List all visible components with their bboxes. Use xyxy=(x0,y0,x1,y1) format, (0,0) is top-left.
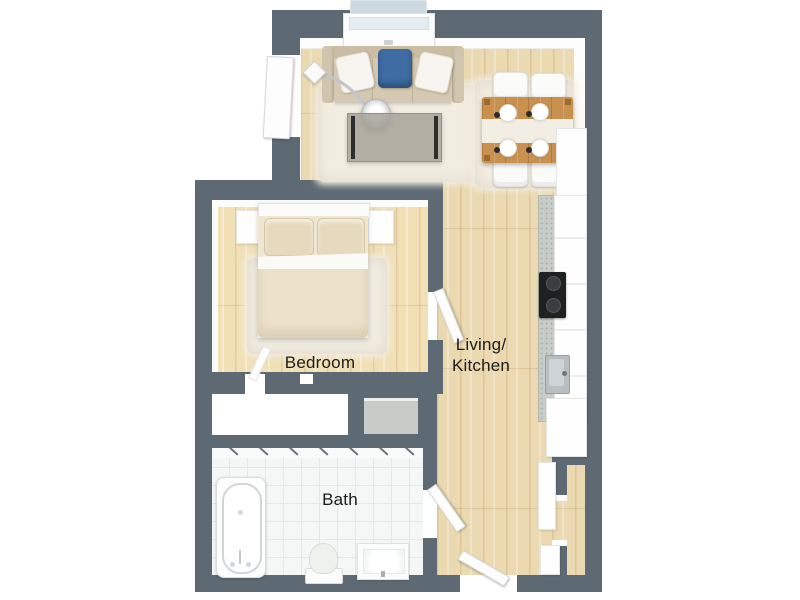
tub-handle-icon xyxy=(246,562,251,567)
wall-bedroom-right-upper xyxy=(428,200,443,292)
sink-vanity xyxy=(357,543,409,580)
wall-bath-right-lower xyxy=(423,538,437,575)
bath-wall-face-top xyxy=(212,448,423,458)
bath-label: Bath xyxy=(290,489,390,510)
wardrobe-closet xyxy=(212,394,348,435)
floor-plan: Bedroom Bath Living/ Kitchen xyxy=(0,0,800,600)
bedroom-label: Bedroom xyxy=(255,352,385,373)
wall-bedroom-top xyxy=(195,180,443,200)
wall-left xyxy=(195,180,212,592)
place-setting xyxy=(499,139,517,157)
burner-icon xyxy=(546,276,561,291)
wall-bath-top xyxy=(195,435,437,448)
wall-bottom-right xyxy=(517,575,602,592)
kitchen-tall-cabinet xyxy=(556,128,587,197)
living-kitchen-label: Living/ Kitchen xyxy=(421,334,541,376)
nightstand xyxy=(368,210,394,244)
utility-closet xyxy=(364,398,418,434)
bedroom-wall-face-left xyxy=(212,207,218,372)
place-setting xyxy=(531,103,549,121)
wall-right xyxy=(585,10,602,592)
kitchen-lower-cabinet xyxy=(538,462,556,530)
coffee-table xyxy=(347,113,442,162)
drain-icon xyxy=(238,510,243,515)
place-setting xyxy=(499,104,517,122)
balcony-door xyxy=(263,56,294,139)
sofa-arm-right xyxy=(452,46,464,103)
living-label-line2: Kitchen xyxy=(421,355,541,376)
nightstand xyxy=(236,210,260,244)
tub-handle-icon xyxy=(230,562,235,567)
table-leg xyxy=(565,99,571,105)
duvet xyxy=(258,269,368,338)
toilet xyxy=(305,543,341,582)
cup-icon xyxy=(526,147,532,153)
cup-icon xyxy=(494,112,500,118)
cup-icon xyxy=(526,111,532,117)
window-glass xyxy=(349,17,429,30)
table-leg xyxy=(484,99,490,105)
toilet-bowl xyxy=(309,543,338,574)
bed-pillow xyxy=(264,218,314,256)
kitchen-sink xyxy=(545,355,570,394)
window-handle-icon xyxy=(384,40,393,45)
tub-faucet-icon xyxy=(239,550,241,564)
bed-pillow xyxy=(317,218,365,256)
cup-icon xyxy=(494,147,500,153)
place-setting xyxy=(531,139,549,157)
bathtub xyxy=(216,477,266,578)
kitchen-lower-cabinet xyxy=(546,398,587,457)
wall-top xyxy=(272,10,602,38)
cooktop xyxy=(539,272,566,318)
living-label-line1: Living/ xyxy=(421,334,541,355)
faucet-icon xyxy=(562,371,567,376)
kitchen-lower-cabinet xyxy=(540,545,560,575)
burner-icon xyxy=(546,298,561,313)
bath-label-text: Bath xyxy=(322,490,358,509)
coffee-table-leg xyxy=(351,116,355,159)
window xyxy=(343,13,435,50)
bedroom-label-text: Bedroom xyxy=(285,353,355,372)
table-leg xyxy=(484,155,490,161)
coffee-table-leg xyxy=(434,116,438,159)
bathtub-basin xyxy=(222,483,262,574)
closet-door-opening xyxy=(300,374,313,384)
bed xyxy=(258,203,368,338)
faucet-icon xyxy=(381,571,385,577)
